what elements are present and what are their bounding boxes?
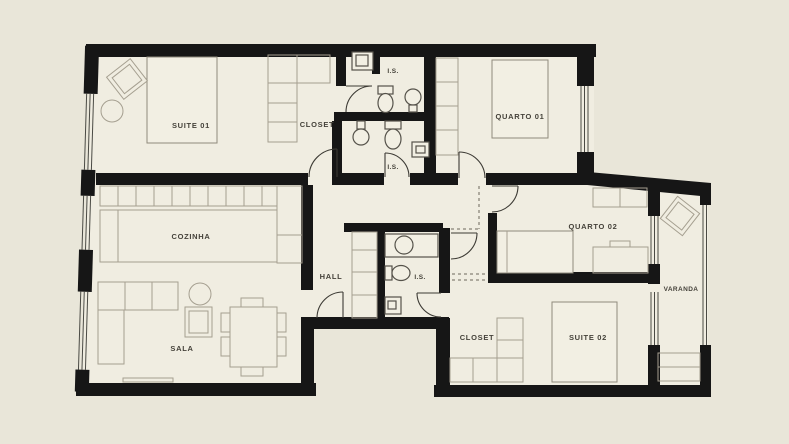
label-quarto02: QUARTO 02: [568, 222, 617, 231]
label-suite02: SUITE 02: [569, 333, 607, 342]
label-closet1: CLOSET: [300, 120, 335, 129]
label-is2: I.S.: [387, 164, 398, 171]
floor-plan: SUITE 01 CLOSET I.S. I.S. QUARTO 01 COZI…: [0, 0, 789, 444]
label-hall: HALL: [320, 272, 343, 281]
label-sala: SALA: [170, 344, 193, 353]
label-quarto01: QUARTO 01: [495, 112, 544, 121]
label-suite01: SUITE 01: [172, 121, 210, 130]
label-is3: I.S.: [414, 274, 425, 281]
furniture-suite02: [552, 302, 617, 382]
label-is1: I.S.: [387, 68, 398, 75]
label-cozinha: COZINHA: [171, 232, 210, 241]
label-varanda: VARANDA: [664, 286, 699, 293]
label-closet2: CLOSET: [460, 333, 495, 342]
